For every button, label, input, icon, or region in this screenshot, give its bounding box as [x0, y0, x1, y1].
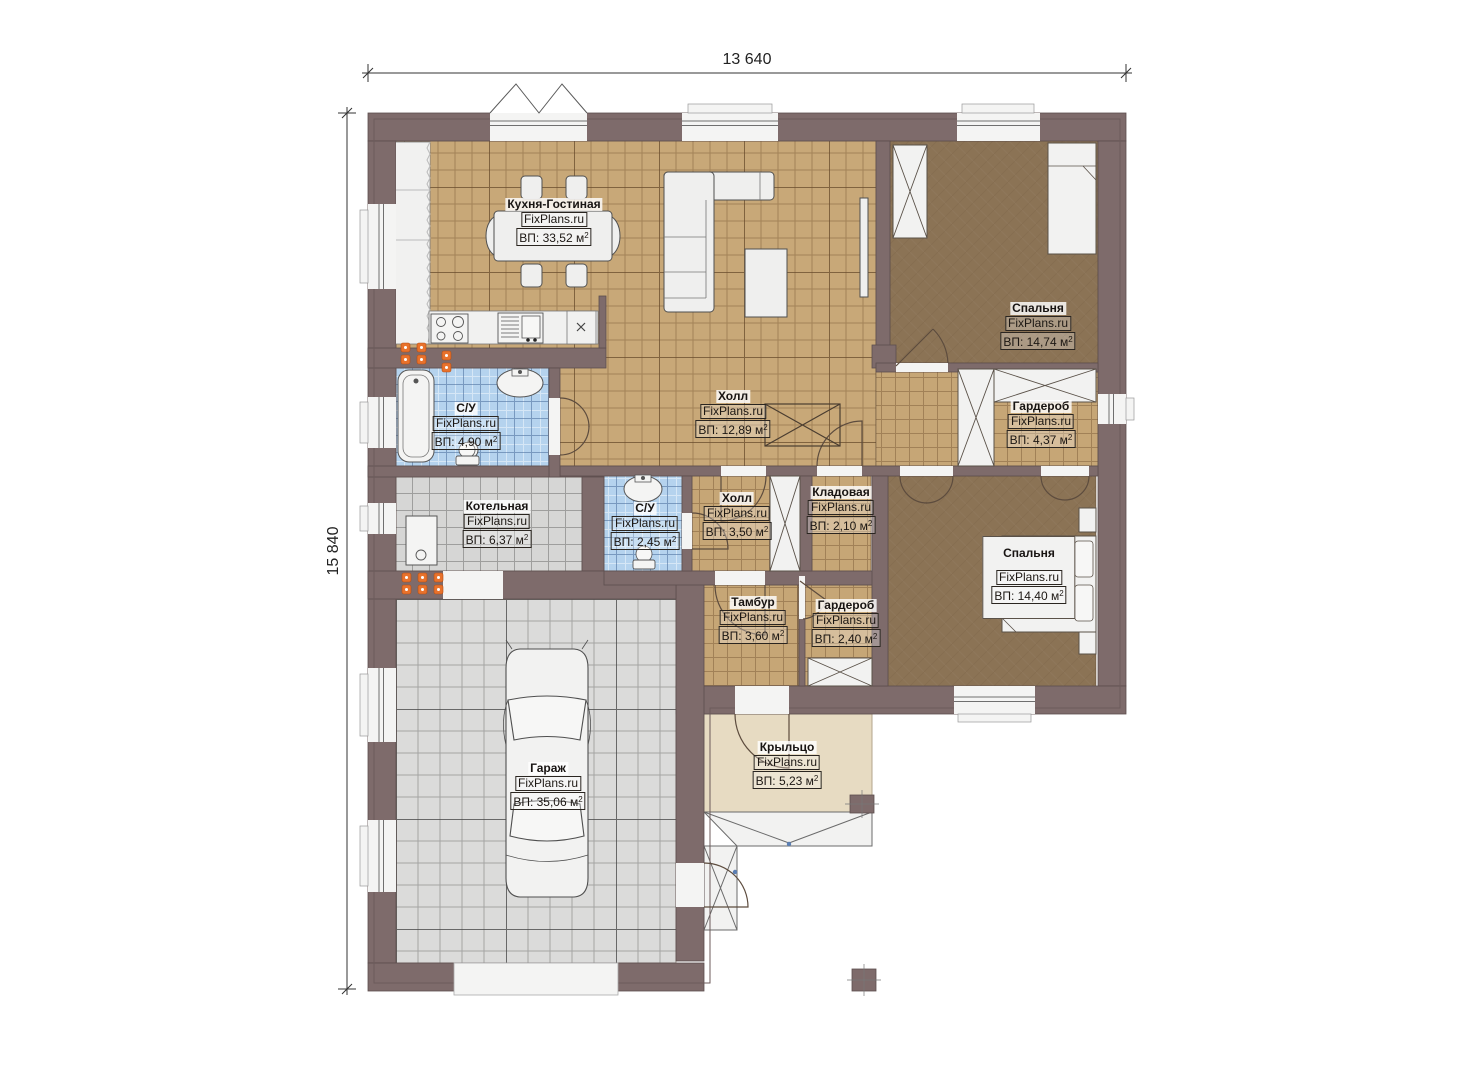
- svg-text:15 840: 15 840: [325, 526, 342, 575]
- svg-text:13 640: 13 640: [723, 51, 772, 68]
